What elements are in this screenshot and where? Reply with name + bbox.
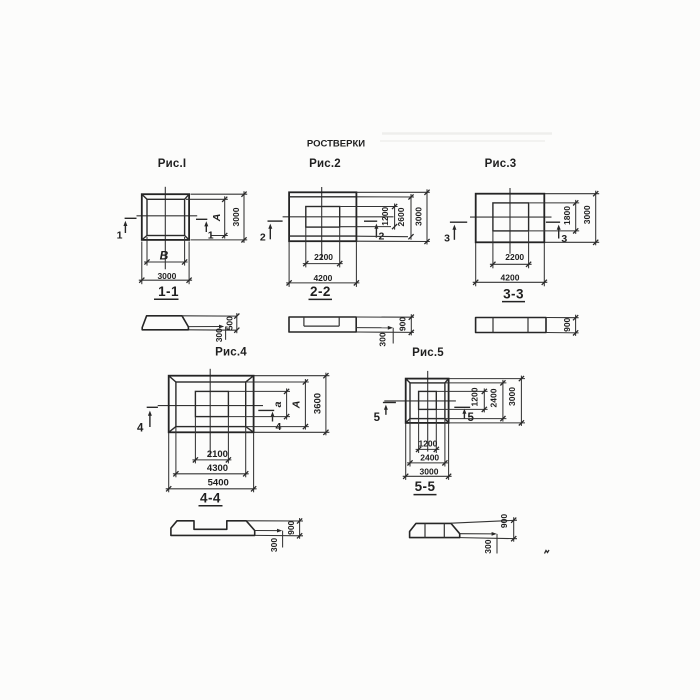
svg-text:а: а: [272, 401, 284, 407]
svg-text:Рис.4: Рис.4: [215, 347, 247, 359]
svg-text:900: 900: [397, 317, 407, 331]
svg-text:Рис.2: Рис.2: [309, 158, 341, 170]
svg-text:1200: 1200: [380, 207, 390, 226]
svg-text:3000: 3000: [420, 467, 439, 477]
svg-text:5: 5: [467, 412, 474, 424]
svg-text:2200: 2200: [505, 252, 524, 262]
svg-text:4300: 4300: [207, 463, 228, 474]
svg-text:1800: 1800: [562, 206, 572, 225]
svg-text:3000: 3000: [507, 387, 517, 406]
svg-text:300: 300: [214, 328, 224, 342]
svg-text:Рис.5: Рис.5: [412, 347, 444, 359]
svg-text:5: 5: [374, 412, 381, 424]
svg-text:4-4: 4-4: [200, 491, 221, 506]
svg-text:900: 900: [562, 317, 572, 331]
svg-text:300: 300: [269, 538, 279, 552]
svg-text:5400: 5400: [208, 478, 229, 489]
svg-text:4200: 4200: [501, 272, 520, 282]
svg-text:3: 3: [444, 233, 450, 245]
svg-text:А: А: [291, 401, 303, 410]
svg-text:1-1: 1-1: [158, 284, 179, 299]
svg-text:3-3: 3-3: [503, 286, 524, 301]
svg-text:В: В: [160, 249, 169, 263]
svg-text:Рис.3: Рис.3: [485, 158, 517, 170]
svg-text:300: 300: [483, 539, 493, 553]
svg-text:3000: 3000: [582, 205, 592, 224]
svg-text:2600: 2600: [396, 207, 406, 226]
svg-text:300: 300: [378, 332, 388, 346]
svg-text:2-2: 2-2: [310, 284, 331, 299]
svg-text:1200: 1200: [470, 387, 480, 406]
svg-text:2200: 2200: [314, 252, 333, 262]
svg-text:1: 1: [117, 229, 123, 241]
svg-text:3000: 3000: [414, 207, 424, 226]
svg-text:3000: 3000: [157, 271, 176, 281]
svg-text:3600: 3600: [312, 393, 323, 414]
svg-text:900: 900: [499, 514, 509, 528]
svg-text:РОСТВЕРКИ: РОСТВЕРКИ: [307, 139, 365, 150]
svg-text:3: 3: [561, 233, 567, 245]
svg-text:Рис.I: Рис.I: [158, 158, 187, 170]
svg-text:2100: 2100: [207, 449, 228, 460]
svg-text:4200: 4200: [313, 273, 332, 283]
svg-text:2400: 2400: [488, 388, 498, 407]
svg-text:2: 2: [260, 231, 266, 243]
svg-text:2400: 2400: [420, 452, 439, 462]
svg-text:5-5: 5-5: [415, 479, 436, 494]
svg-text:3000: 3000: [231, 207, 241, 226]
svg-text:4: 4: [137, 422, 144, 434]
svg-text:1200: 1200: [418, 438, 437, 448]
svg-text:А: А: [211, 214, 223, 223]
svg-text:900: 900: [286, 520, 296, 534]
